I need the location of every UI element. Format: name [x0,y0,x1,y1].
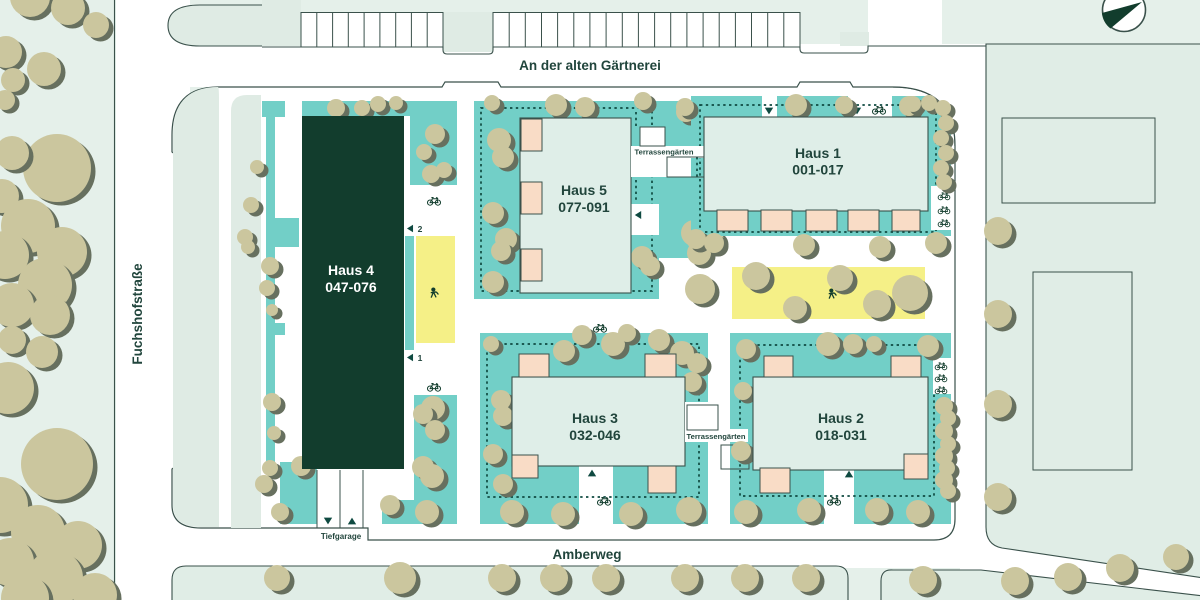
svg-text:Fuchshofstraße: Fuchshofstraße [130,263,145,365]
svg-text:077-091: 077-091 [558,199,610,215]
svg-text:Haus 1: Haus 1 [795,145,841,161]
svg-text:Haus 4: Haus 4 [328,262,374,278]
svg-text:001-017: 001-017 [792,162,844,178]
svg-text:Haus 2: Haus 2 [818,410,864,426]
svg-text:Terrassengärten: Terrassengärten [687,432,746,441]
svg-text:018-031: 018-031 [815,427,867,443]
svg-text:An der alten Gärtnerei: An der alten Gärtnerei [519,58,661,73]
svg-text:032-046: 032-046 [569,427,621,443]
svg-text:1: 1 [418,353,423,363]
svg-text:Terrassengärten: Terrassengärten [635,148,694,157]
svg-text:047-076: 047-076 [325,279,377,295]
svg-text:Amberweg: Amberweg [552,547,621,562]
svg-text:Haus 3: Haus 3 [572,410,618,426]
svg-text:Tiefgarage: Tiefgarage [321,532,362,541]
svg-text:2: 2 [418,224,423,234]
svg-text:Haus 5: Haus 5 [561,182,607,198]
